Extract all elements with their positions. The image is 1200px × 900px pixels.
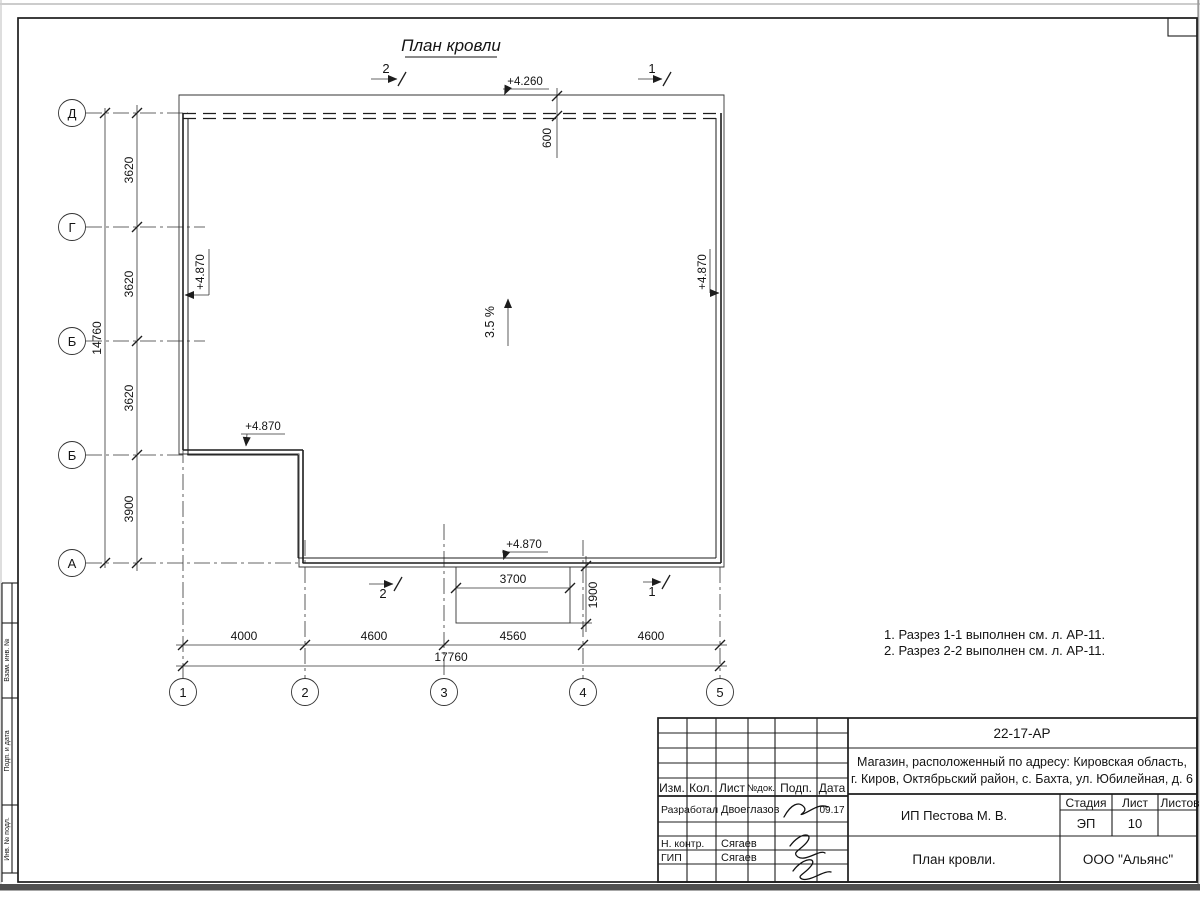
section-label: 1 [648, 584, 655, 599]
elevation-parapet-bottom: +4.870 [502, 539, 548, 560]
tb-date: 09.17 [819, 805, 844, 816]
dim-label: 4560 [500, 629, 527, 643]
title-block: Изм. Кол. Лист №док. Подп. Дата Разработ… [658, 718, 1200, 882]
note-line: 1. Разрез 1-1 выполнен см. л. АР-11. [884, 627, 1105, 642]
axis-row-bubbles: Д Г Б Б А [59, 100, 86, 577]
tb-stage-label: Стадия [1066, 796, 1107, 810]
dim-label: 3900 [122, 495, 136, 522]
side-stamp-label: Взам. инв. № [4, 638, 11, 681]
section-marks: 2 1 2 1 [369, 61, 671, 601]
slope-label: 3.5 % [483, 306, 497, 338]
section-mark-2-top: 2 [371, 61, 406, 86]
axis-row-label: Г [68, 220, 75, 235]
elevation-marks: +4.260 +4.870 +4.870 +4.870 +4.870 [185, 76, 719, 560]
drawing-sheet: Взам. инв. № Подп. и дата Инв. № подл. П… [0, 0, 1200, 900]
tb-header: Лист [719, 781, 746, 795]
elevation-parapet-left: +4.870 [185, 249, 209, 295]
tb-header: Кол. [689, 781, 713, 795]
notes: 1. Разрез 1-1 выполнен см. л. АР-11. 2. … [884, 627, 1105, 658]
elevation-parapet-notch: +4.870 [241, 421, 285, 446]
tb-header: Дата [819, 781, 846, 795]
section-label: 1 [648, 61, 655, 76]
axis-col-label: 1 [179, 685, 186, 700]
side-stamp: Взам. инв. № Подп. и дата Инв. № подл. [2, 583, 18, 882]
page-title: План кровли [401, 36, 501, 55]
dim-label: 600 [540, 128, 554, 148]
section-label: 2 [382, 61, 389, 76]
elevation-label: +4.260 [507, 76, 543, 88]
tb-name: Сягаев [721, 838, 757, 850]
section-label: 2 [379, 586, 386, 601]
axis-col-bubbles: 1 2 3 4 5 [170, 679, 734, 706]
axis-row-label: Д [68, 106, 77, 121]
dim-label: 3620 [122, 156, 136, 183]
dim-label: 4600 [361, 629, 388, 643]
tb-stage-value: ЭП [1077, 816, 1096, 831]
dimensions-left: 3620 3620 3620 3900 14760 [90, 105, 142, 571]
dim-label-total: 17760 [434, 650, 468, 664]
tb-name: Сягаев [721, 852, 757, 864]
side-stamp-label: Инв. № подл. [4, 817, 11, 861]
dim-label: 1900 [586, 581, 600, 608]
dim-label-total: 14760 [90, 321, 104, 355]
axis-row-label: Б [68, 448, 77, 463]
elevation-label: +4.870 [195, 254, 207, 290]
dim-label: 3620 [122, 384, 136, 411]
axis-col-label: 3 [440, 685, 447, 700]
dimensions-bottom: 4000 4600 4560 4600 17760 [176, 629, 727, 671]
tb-project-line: г. Киров, Октябрьский район, с. Бахта, у… [851, 772, 1193, 786]
axis-col-label: 4 [579, 685, 586, 700]
dim-label: 4000 [231, 629, 258, 643]
tb-name: Двоеглазов [721, 804, 780, 816]
section-mark-1-bottom: 1 [643, 575, 670, 599]
tb-project-line: Магазин, расположенный по адресу: Кировс… [857, 755, 1187, 769]
elevation-label: +4.870 [245, 421, 281, 433]
side-stamp-label: Подп. и дата [4, 730, 11, 771]
drawing-title: План кровли [401, 36, 501, 57]
note-line: 2. Разрез 2-2 выполнен см. л. АР-11. [884, 643, 1105, 658]
elevation-label: +4.870 [697, 254, 709, 290]
tb-sheet-label: Лист [1122, 796, 1149, 810]
axis-row-label: Б [68, 334, 77, 349]
corner-stamp-box [1168, 18, 1197, 36]
dim-label: 4600 [638, 629, 665, 643]
tb-sheet-title: План кровли. [912, 852, 995, 867]
dim-label: 3620 [122, 270, 136, 297]
axis-grid: Д Г Б Б А 1 2 3 4 5 [59, 100, 734, 706]
elevation-roof-edge: +4.260 [503, 76, 549, 95]
tb-client: ИП Пестова М. В. [901, 808, 1007, 823]
dimension-overhang: 600 [540, 88, 562, 158]
tb-sheets-label: Листов [1161, 796, 1200, 810]
tb-role: Разработал [661, 804, 718, 816]
elevation-label: +4.870 [506, 539, 542, 551]
tb-role: ГИП [661, 852, 682, 864]
roof-plan-outline [179, 95, 724, 623]
dim-label: 3700 [500, 572, 527, 586]
tb-role: Н. контр. [661, 838, 704, 850]
section-mark-2-bottom: 2 [369, 577, 402, 601]
roof-edge [179, 95, 724, 567]
section-mark-1-top: 1 [638, 61, 671, 86]
tb-company: ООО "Альянс" [1083, 852, 1173, 867]
tb-header: Подп. [780, 781, 812, 795]
axis-row-label: А [68, 556, 77, 571]
slope-mark: 3.5 % [483, 299, 508, 346]
tb-sheet-value: 10 [1128, 816, 1142, 831]
tb-header: Изм. [659, 781, 685, 795]
tb-header: №док. [747, 783, 775, 794]
axis-col-label: 2 [301, 685, 308, 700]
axis-col-label: 5 [716, 685, 723, 700]
tb-doc-number: 22-17-АР [993, 726, 1050, 741]
